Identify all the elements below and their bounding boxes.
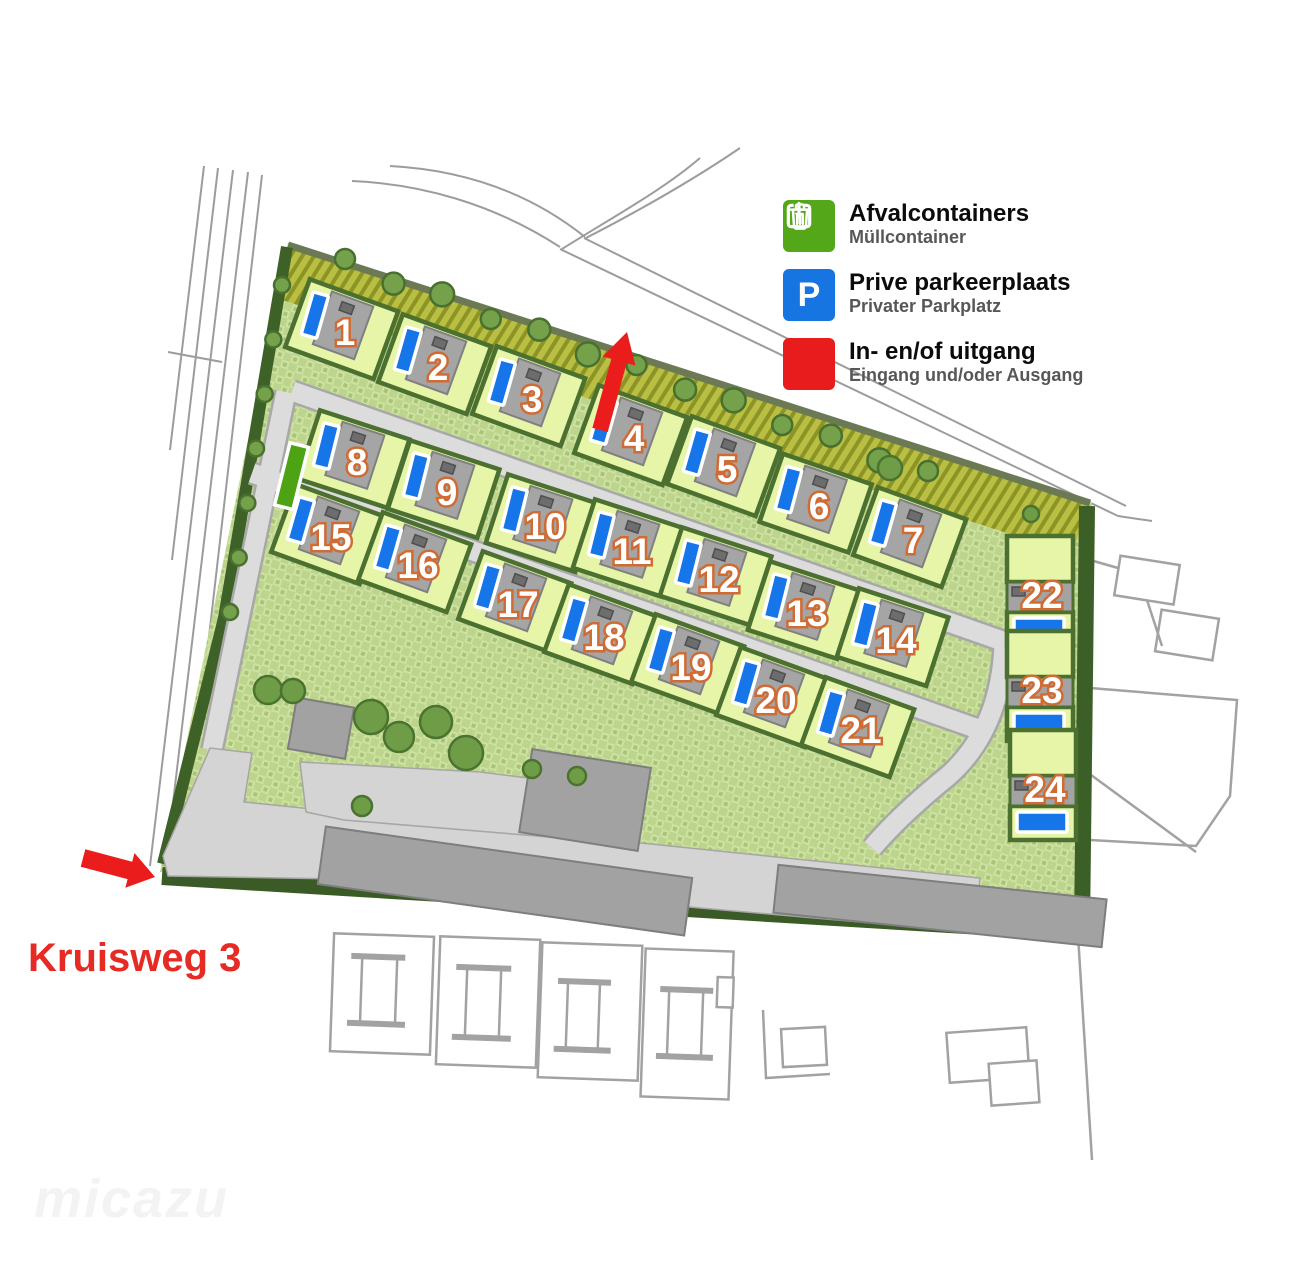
- park-tree: [384, 722, 414, 752]
- hedge-shrub: [222, 604, 238, 620]
- hedge-shrub: [231, 550, 247, 566]
- plot-number-2: 2: [428, 347, 449, 388]
- strip-tree: [674, 379, 696, 401]
- hedge-shrub: [265, 332, 281, 348]
- street-label: Kruisweg 3: [28, 936, 241, 981]
- legend-label-afvalcontainers: Afvalcontainers: [849, 201, 1029, 227]
- park-tree: [568, 767, 586, 785]
- park-tree: [420, 706, 452, 738]
- legend-item-in-en-of-uitgang: In- en/of uitgang Eingang und/oder Ausga…: [783, 338, 1283, 390]
- hedge-shrub: [239, 495, 255, 511]
- plot-number-14: 14: [875, 620, 917, 661]
- plot-number-12: 12: [698, 559, 739, 600]
- strip-tree: [430, 282, 454, 306]
- plot-number-11: 11: [612, 531, 651, 572]
- park-tree: [523, 760, 541, 778]
- legend-sublabel-afvalcontainers: Müllcontainer: [849, 227, 1029, 249]
- plot-number-19: 19: [670, 647, 711, 688]
- plot-number-8: 8: [347, 442, 368, 483]
- plot-number-1: 1: [335, 312, 356, 353]
- plot-number-13: 13: [786, 593, 827, 634]
- strip-tree: [772, 415, 792, 435]
- plot-number-16: 16: [397, 545, 438, 586]
- site-plan-map: 123456789101112131415161718192021222324 …: [0, 0, 1298, 1266]
- plot-number-18: 18: [583, 617, 624, 658]
- strip-tree: [918, 461, 938, 481]
- park-tree: [878, 456, 902, 480]
- plot-number-4: 4: [624, 418, 645, 459]
- hedge-shrub: [248, 441, 264, 457]
- hedge-shrub: [274, 277, 290, 293]
- plot-number-17: 17: [497, 584, 538, 625]
- plot-number-5: 5: [717, 449, 738, 490]
- plot-number-22: 22: [1021, 575, 1062, 616]
- entrance-arrow: [81, 849, 155, 888]
- park-tree: [449, 736, 483, 770]
- strip-tree: [722, 388, 746, 412]
- legend-sublabel-in-en-of-uitgang: Eingang und/oder Ausgang: [849, 365, 1083, 387]
- park-tree: [254, 676, 282, 704]
- strip-tree: [528, 319, 550, 341]
- park-tree: [281, 679, 305, 703]
- strip-tree: [383, 273, 405, 295]
- park-tree: [1023, 506, 1039, 522]
- strip-tree: [820, 425, 842, 447]
- plot-number-10: 10: [524, 506, 565, 547]
- plot-number-23: 23: [1021, 670, 1062, 711]
- plot-number-15: 15: [310, 517, 351, 558]
- legend-item-afvalcontainers: Afvalcontainers Müllcontainer: [783, 200, 1283, 252]
- plot-number-21: 21: [840, 710, 881, 751]
- legend: Afvalcontainers Müllcontainer P Prive pa…: [783, 200, 1283, 390]
- legend-sublabel-prive-parkeerplaats: Privater Parkplatz: [849, 296, 1070, 318]
- strip-tree: [335, 249, 355, 269]
- park-tree: [352, 796, 372, 816]
- parking-icon: P: [783, 269, 835, 321]
- strip-tree: [576, 342, 600, 366]
- site-plan-svg: 123456789101112131415161718192021222324: [0, 0, 1298, 1266]
- strip-tree: [481, 309, 501, 329]
- hedge-shrub: [257, 386, 273, 402]
- plot-number-3: 3: [522, 379, 543, 420]
- parking-spot-24: [1017, 812, 1067, 832]
- plot-number-7: 7: [903, 520, 924, 561]
- legend-label-prive-parkeerplaats: Prive parkeerplaats: [849, 270, 1070, 296]
- plot-number-6: 6: [809, 486, 830, 527]
- legend-item-prive-parkeerplaats: P Prive parkeerplaats Privater Parkplatz: [783, 269, 1283, 321]
- legend-label-in-en-of-uitgang: In- en/of uitgang: [849, 339, 1083, 365]
- plot-number-20: 20: [755, 680, 796, 721]
- plot-number-24: 24: [1024, 769, 1066, 810]
- watermark: micazu: [34, 1168, 229, 1230]
- park-tree: [354, 700, 388, 734]
- entrance-exit-icon: [783, 338, 835, 390]
- plot-number-9: 9: [437, 472, 458, 513]
